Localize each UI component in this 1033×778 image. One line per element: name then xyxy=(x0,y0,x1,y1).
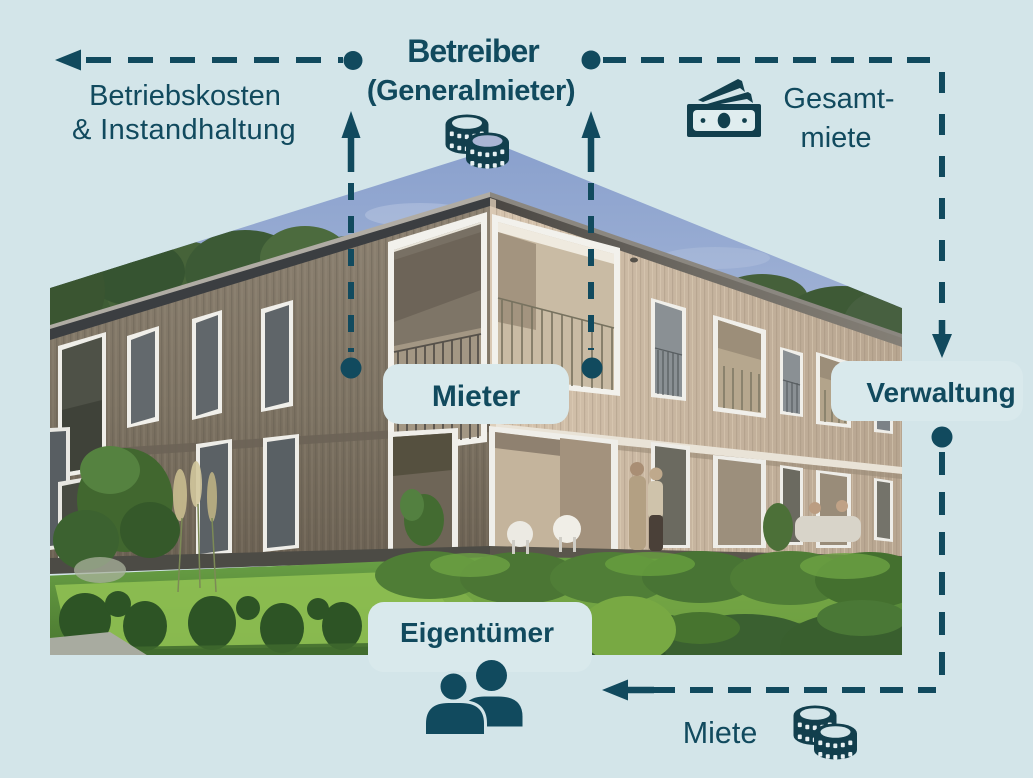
svg-text:Eigentümer: Eigentümer xyxy=(400,617,554,648)
svg-text:Verwaltung: Verwaltung xyxy=(866,377,1015,408)
svg-text:Betriebskosten: Betriebskosten xyxy=(89,80,281,112)
svg-text:& Instandhaltung: & Instandhaltung xyxy=(72,114,296,146)
svg-text:Betreiber: Betreiber xyxy=(407,33,539,69)
svg-text:miete: miete xyxy=(801,122,872,154)
svg-text:Mieter: Mieter xyxy=(432,380,521,413)
svg-text:(Generalmieter): (Generalmieter) xyxy=(367,75,575,107)
svg-text:Miete: Miete xyxy=(683,716,758,750)
svg-text:Gesamt-: Gesamt- xyxy=(783,83,894,115)
